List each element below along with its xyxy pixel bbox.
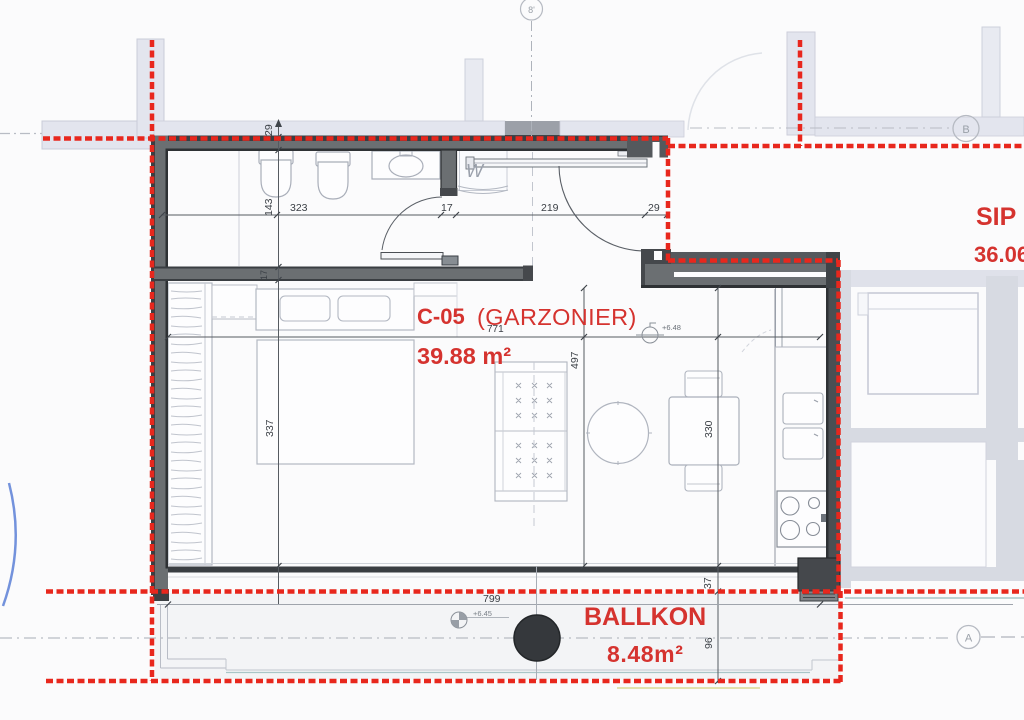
svg-text:W: W [466,161,485,181]
svg-text:B: B [962,124,969,136]
svg-text:8.48m²: 8.48m² [607,641,683,667]
svg-text:SIP: SIP [976,203,1016,231]
svg-text:8': 8' [528,5,535,15]
svg-text:C-05: C-05 [417,304,465,329]
svg-text:29: 29 [648,202,660,214]
svg-text:A: A [965,633,973,645]
svg-text:17: 17 [441,202,453,214]
svg-text:(GARZONIER): (GARZONIER) [477,304,637,330]
svg-text:36.06: 36.06 [974,242,1024,267]
svg-text:17: 17 [259,270,269,280]
svg-text:143: 143 [263,198,275,216]
svg-text:96: 96 [703,637,715,649]
svg-text:BALLKON: BALLKON [584,603,706,631]
svg-text:39.88 m²: 39.88 m² [417,343,511,369]
svg-text:37: 37 [702,577,714,589]
svg-text:337: 337 [264,419,276,437]
svg-text:323: 323 [290,202,308,214]
svg-text:799: 799 [483,593,501,605]
svg-text:+6.45: +6.45 [473,609,492,618]
svg-text:219: 219 [541,202,559,214]
svg-text:497: 497 [569,351,581,369]
svg-text:+6.48: +6.48 [662,323,681,332]
svg-text:29: 29 [263,124,275,136]
svg-text:330: 330 [703,420,715,438]
